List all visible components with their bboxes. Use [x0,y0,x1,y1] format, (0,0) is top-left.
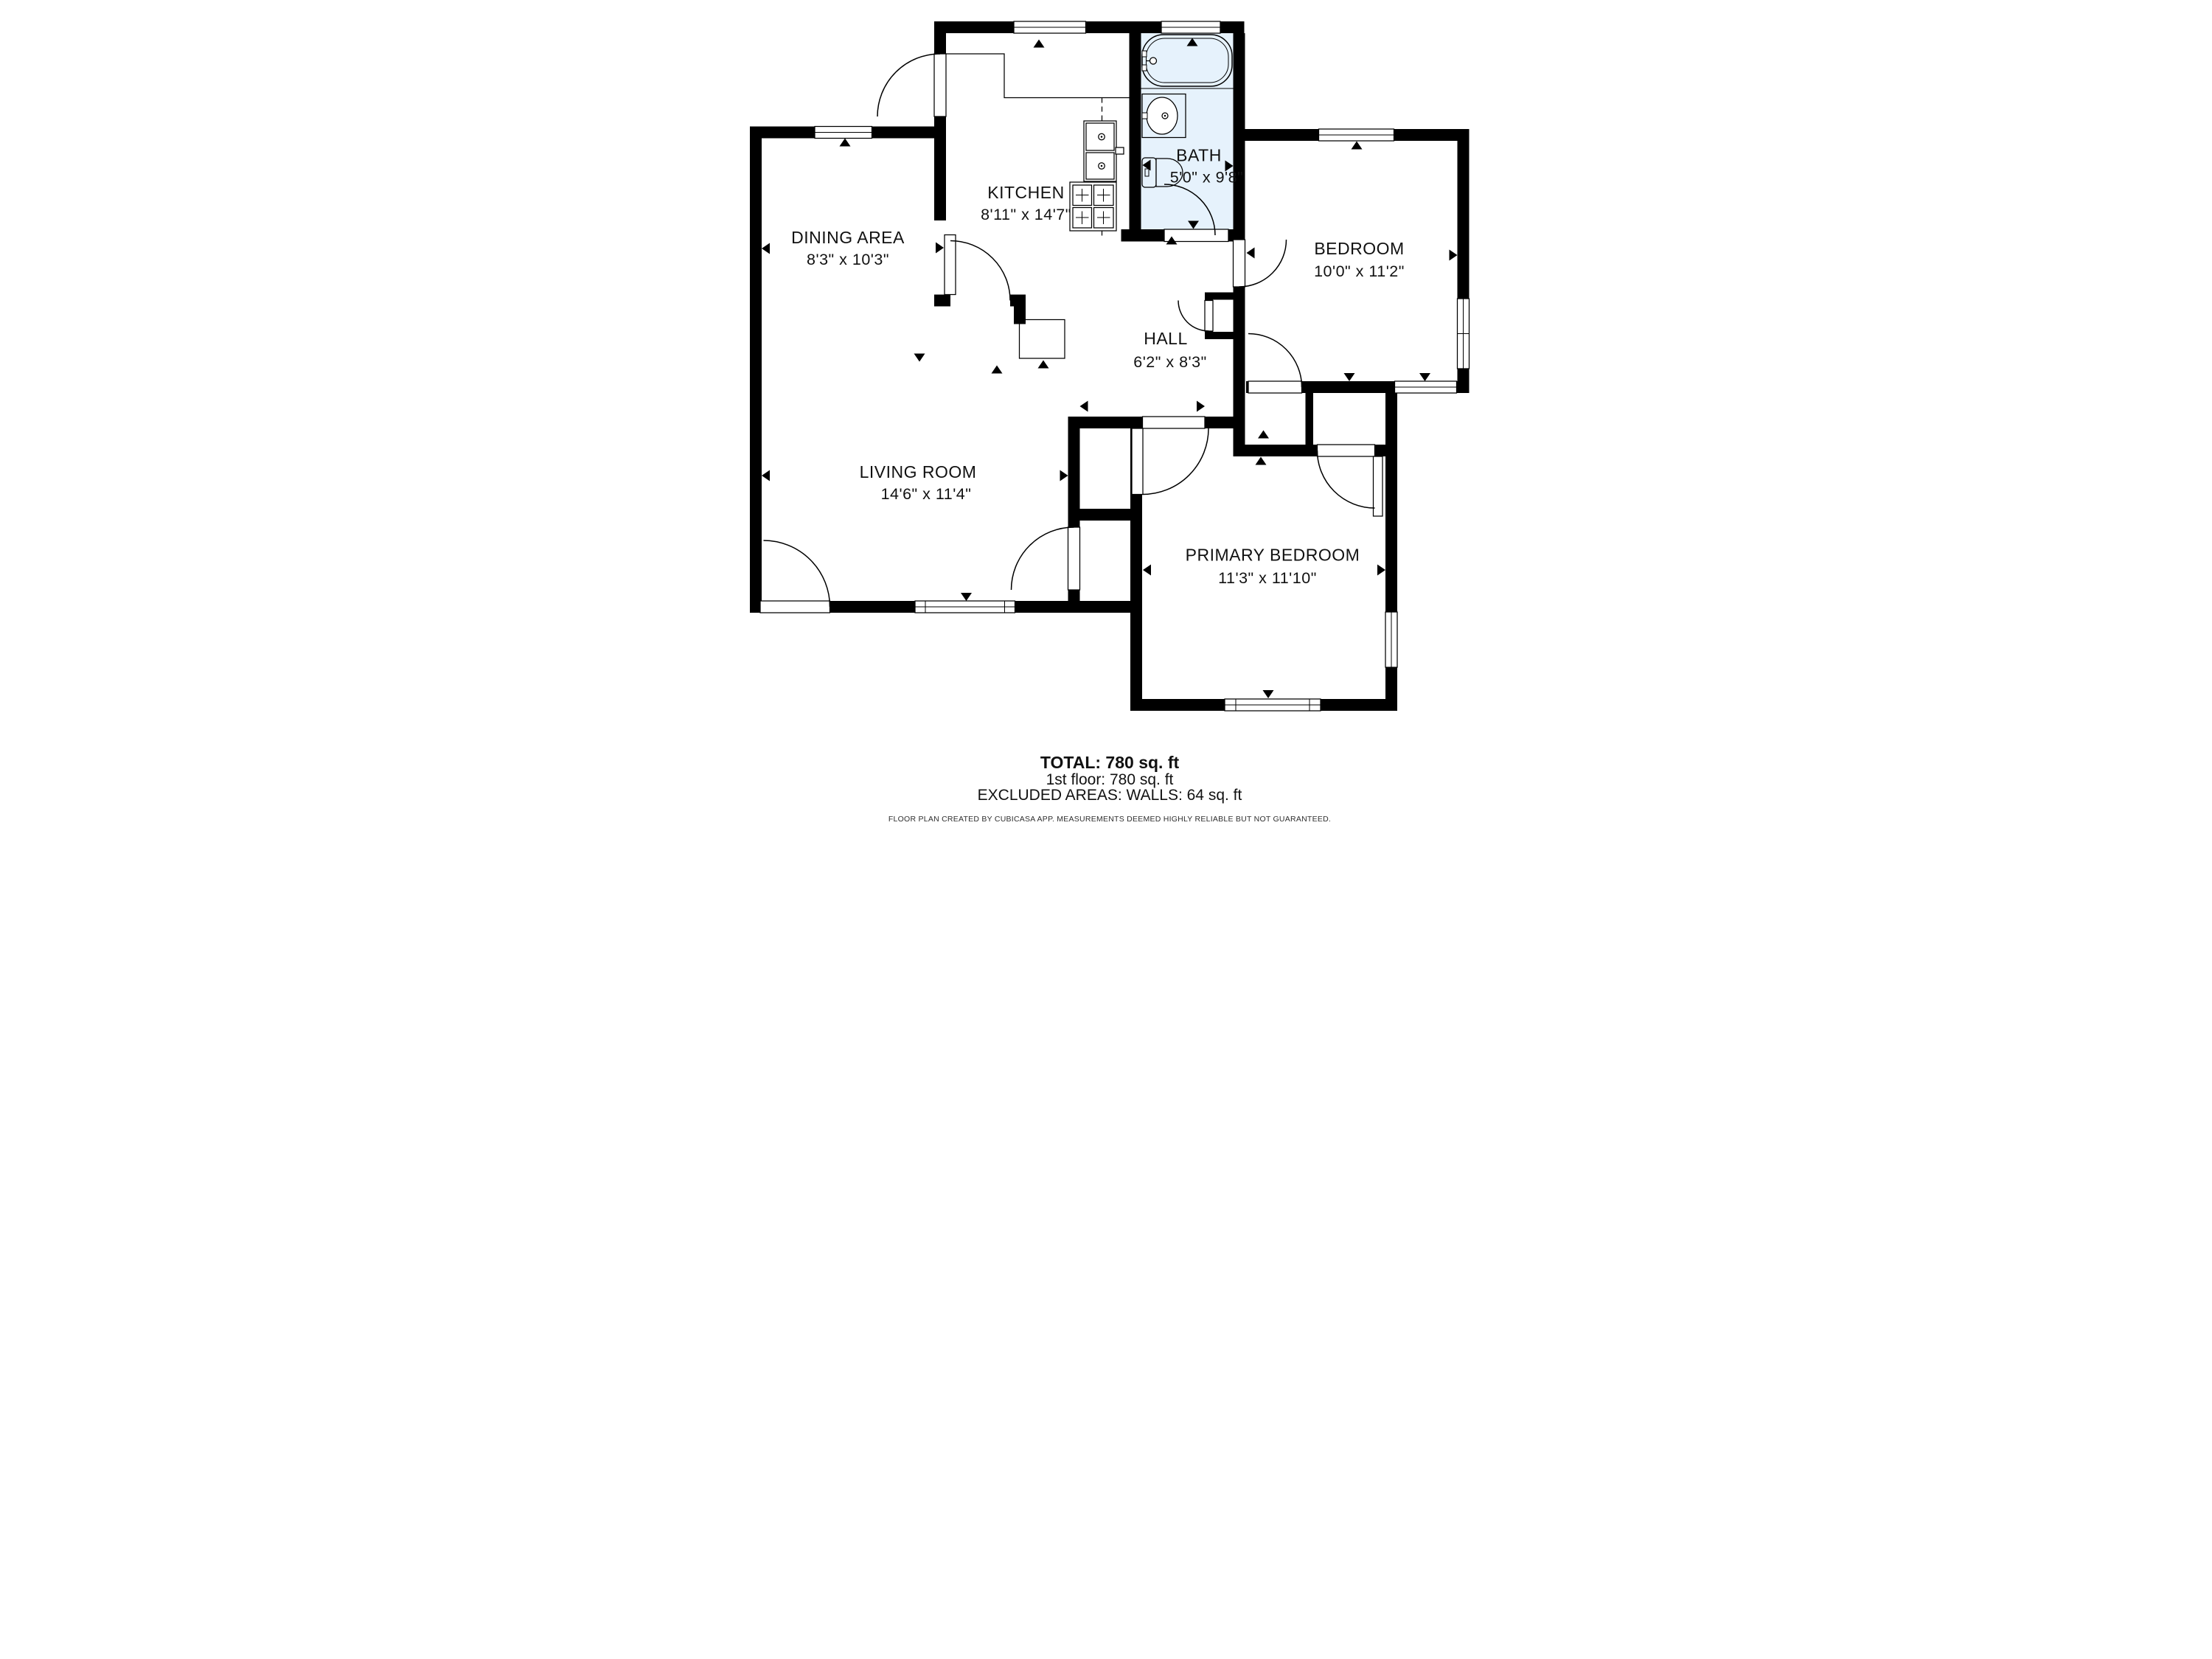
marker-down-icon [1344,373,1355,381]
marker-right-icon [936,243,944,254]
marker-up-icon [1258,431,1269,439]
marker-right-icon [1060,470,1068,481]
excluded-area-text: EXCLUDED AREAS: WALLS: 64 sq. ft [978,787,1242,804]
room-label-bath: BATH [1176,146,1222,165]
marker-right-icon [1450,250,1458,261]
marker-right-icon [1197,401,1205,412]
living-closet-door [1012,527,1080,590]
room-label-dining: DINING AREA [791,228,905,247]
room-dims-bedroom: 10'0" x 11'2" [1314,262,1405,280]
marker-left-icon [1080,401,1088,412]
room-dims-hall: 6'2" x 8'3" [1133,353,1207,371]
marker-left-icon [1247,248,1255,259]
bedroom-closet-door [1248,334,1302,394]
window [815,127,872,139]
floor-plan: DINING AREA 8'3" x 10'3" KITCHEN 8'11" x… [553,0,1659,829]
bedroom-door [1234,240,1287,287]
marker-left-icon [762,243,770,254]
marker-left-icon [1143,565,1151,576]
window [1319,129,1394,141]
window [1014,21,1086,33]
kitchen-dining-door [945,235,1010,301]
room-label-bedroom: BEDROOM [1314,239,1404,258]
room-dims-living: 14'6" x 11'4" [881,485,972,503]
primary-bedroom-door [1132,417,1208,495]
marker-down-icon [1263,690,1274,698]
room-dims-kitchen: 8'11" x 14'7" [981,206,1071,223]
floor-plan-page: DINING AREA 8'3" x 10'3" KITCHEN 8'11" x… [553,0,1659,829]
marker-left-icon [762,470,770,481]
marker-down-icon [961,593,972,601]
room-label-hall: HALL [1144,329,1188,348]
marker-up-icon [1256,457,1267,465]
area-summary: TOTAL: 780 sq. ft 1st floor: 780 sq. ft … [888,753,1331,824]
window [1385,612,1397,667]
marker-up-icon [1034,40,1045,48]
stove-icon [1070,182,1116,231]
total-area-text: TOTAL: 780 sq. ft [1040,753,1180,772]
marker-down-icon [1419,373,1430,381]
cabinet-icon [1020,320,1065,359]
room-label-living: LIVING ROOM [860,462,977,481]
room-dims-primary: 11'3" x 11'10" [1218,569,1317,587]
entry-door [877,54,946,116]
kitchen-sink-icon [1084,121,1124,181]
room-label-kitchen: KITCHEN [987,183,1064,202]
window [1458,299,1470,369]
marker-up-icon [840,139,851,147]
bath-sink-icon [1142,94,1186,138]
marker-right-icon [1377,565,1385,576]
marker-up-icon [1038,361,1049,369]
room-label-primary: PRIMARY BEDROOM [1186,546,1360,565]
disclaimer-text: FLOOR PLAN CREATED BY CUBICASA APP. MEAS… [888,815,1331,824]
window [1161,21,1220,33]
floor-area-text: 1st floor: 780 sq. ft [1046,771,1174,788]
marker-down-icon [914,354,925,362]
living-entry-door [760,540,830,613]
window [1225,699,1321,711]
window [1395,381,1457,393]
primary-closet-door [1318,445,1383,516]
room-dims-bath: 5'0" x 9'8" [1170,169,1244,187]
marker-up-icon [1352,142,1363,150]
hall-closet-door [1178,301,1213,332]
bathtub-icon [1141,35,1234,88]
marker-up-icon [992,366,1003,374]
room-dims-dining: 8'3" x 10'3" [807,251,889,268]
window [915,601,1015,613]
